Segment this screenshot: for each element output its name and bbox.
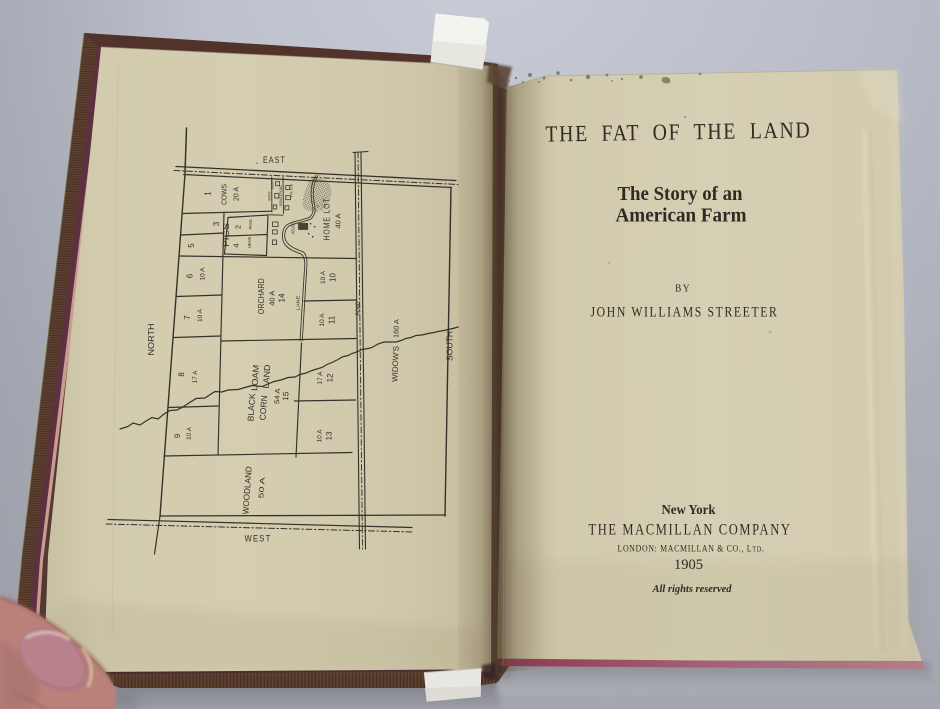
svg-text:13: 13 <box>324 431 333 441</box>
svg-text:17 A: 17 A <box>317 371 324 385</box>
svg-text:3: 3 <box>212 221 221 226</box>
svg-text:LONDON: MACMILLAN & CO., LTD.: LONDON: MACMILLAN & CO., LTD. <box>618 545 765 555</box>
svg-text:12: 12 <box>325 373 334 383</box>
svg-text:40 A: 40 A <box>336 213 343 228</box>
svg-text:DAIRY: DAIRY <box>271 179 275 189</box>
svg-text:WEST: WEST <box>245 534 272 545</box>
svg-text:1905: 1905 <box>674 557 703 573</box>
svg-text:The Story of an: The Story of an <box>618 183 743 205</box>
svg-text:HENS: HENS <box>247 237 252 248</box>
svg-text:17 A: 17 A <box>192 370 199 384</box>
svg-text:SERVICE ROAD: SERVICE ROAD <box>279 185 283 206</box>
svg-text:10 A: 10 A <box>319 313 326 327</box>
svg-text:20 A: 20 A <box>234 187 241 201</box>
svg-text:All rights reserved: All rights reserved <box>651 584 732 595</box>
svg-text:THE MACMILLAN COMPANY: THE MACMILLAN COMPANY <box>589 522 792 539</box>
svg-text:NORTH: NORTH <box>147 323 156 355</box>
svg-text:160 A: 160 A <box>393 319 401 339</box>
svg-text:4: 4 <box>232 243 241 247</box>
svg-text:HOUSE: HOUSE <box>291 223 296 234</box>
svg-text:ROAD: ROAD <box>356 301 362 315</box>
svg-text:PIGS: PIGS <box>222 223 231 247</box>
svg-text:10 A: 10 A <box>200 267 207 281</box>
svg-text:10 A: 10 A <box>197 308 204 322</box>
svg-text:JOHN WILLIAMS STREETER: JOHN WILLIAMS STREETER <box>591 305 779 321</box>
svg-text:ORCHARD: ORCHARD <box>257 278 266 314</box>
svg-text:10 A: 10 A <box>186 426 193 440</box>
svg-text:LOAM: LOAM <box>249 364 261 391</box>
svg-text:6: 6 <box>186 273 195 278</box>
svg-text:PIGS: PIGS <box>248 220 253 230</box>
svg-text:2: 2 <box>234 225 243 229</box>
svg-text:11: 11 <box>328 315 337 324</box>
svg-text:5: 5 <box>187 243 196 248</box>
svg-text:COWS: COWS <box>220 184 229 205</box>
svg-text:40 A: 40 A <box>270 290 277 305</box>
svg-text:New York: New York <box>662 502 716 517</box>
svg-text:THE FAT OF THE LAND: THE FAT OF THE LAND <box>545 117 811 146</box>
svg-text:EAST: EAST <box>263 155 286 165</box>
svg-text:SOUTH: SOUTH <box>446 331 455 361</box>
svg-text:CORN: CORN <box>257 395 269 421</box>
svg-text:15: 15 <box>281 391 291 401</box>
svg-text:14: 14 <box>277 293 286 302</box>
svg-text:10: 10 <box>329 273 338 282</box>
svg-text:LANE: LANE <box>296 296 301 311</box>
svg-text:7: 7 <box>183 315 192 320</box>
svg-text:1: 1 <box>204 191 213 196</box>
svg-text:F.M. ICE: F.M. ICE <box>290 183 294 197</box>
svg-text:50 A: 50 A <box>258 477 266 499</box>
svg-text:LAND: LAND <box>261 364 273 389</box>
svg-text:American Farm: American Farm <box>616 205 747 227</box>
svg-text:BARNS: BARNS <box>268 192 272 201</box>
svg-text:10 A: 10 A <box>320 270 327 284</box>
svg-text:10 A: 10 A <box>316 429 323 443</box>
svg-text:BLACK: BLACK <box>245 393 257 422</box>
svg-text:BY: BY <box>675 284 691 295</box>
svg-text:HOME LOT: HOME LOT <box>323 198 332 241</box>
svg-text:WIDOW'S: WIDOW'S <box>390 346 400 382</box>
